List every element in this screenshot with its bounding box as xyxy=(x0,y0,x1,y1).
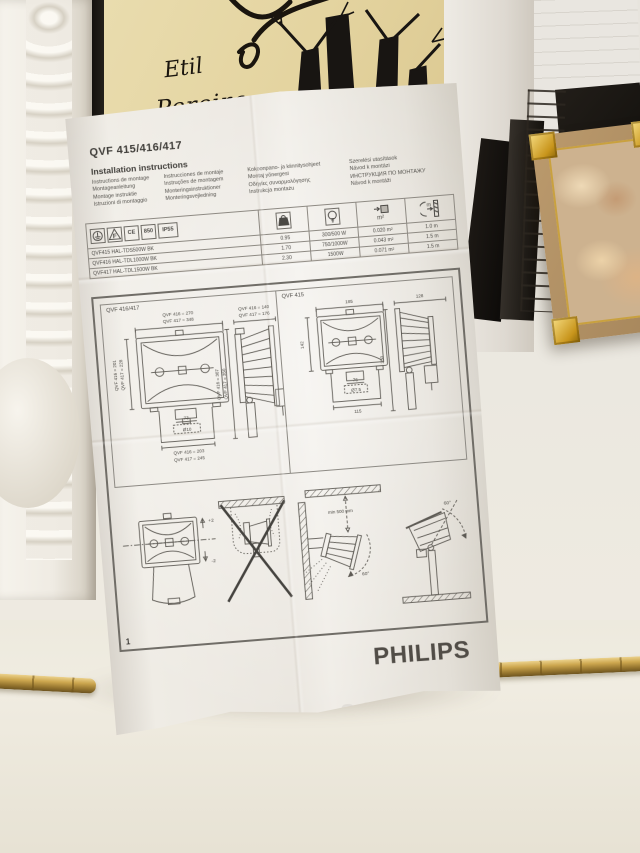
pole-angle-label: 60° xyxy=(444,500,452,507)
dim-label: 250 xyxy=(379,355,385,363)
aim-down-label: -2 xyxy=(211,558,216,564)
m-label: m xyxy=(426,202,431,208)
bulb-icon xyxy=(311,206,354,227)
ce-mark: CE xyxy=(123,225,139,241)
aiming-diagram xyxy=(121,510,221,608)
qvf415-drawing: 185 142 76 Ø7.5 115 128 250 xyxy=(276,277,466,473)
f-triangle-icon: F xyxy=(107,226,123,242)
dim-label: QVF 417 = 176 xyxy=(239,310,271,318)
wall-mount-diagram xyxy=(297,485,389,600)
technical-drawings-box: QVF 416/417 xyxy=(91,268,488,653)
min-distance-icon: m xyxy=(409,198,452,219)
spec-table: F CE 850 IP55 kg xyxy=(85,194,458,279)
f-symbol-label: F xyxy=(113,233,118,240)
translation-col-2: Instrucciones de montaje Instruções de m… xyxy=(163,167,249,203)
dim-label: 185 xyxy=(345,299,353,305)
model-number: QVF 415/416/417 xyxy=(89,139,183,158)
dim-label: 115 xyxy=(354,408,362,414)
translation-col-1: Instructions de montage Montageanleitung… xyxy=(92,174,166,209)
panel-qvf416-417: QVF 416/417 xyxy=(101,291,291,487)
kg-label: kg xyxy=(281,220,287,225)
gold-corner-ornament xyxy=(529,131,558,160)
page-number: 1 xyxy=(125,637,130,646)
dim-label: 142 xyxy=(299,341,305,349)
forbidden-recess-diagram xyxy=(218,496,288,559)
pole-mount-diagram xyxy=(395,499,471,603)
min-distance-label: min 500 mm xyxy=(328,508,353,515)
photo-scene: Etil Pereira QVF 415/416/417 Installatio… xyxy=(0,0,640,853)
dim-label: QVF 417 = 245 xyxy=(174,455,206,463)
weight-kg-icon: kg xyxy=(262,210,305,231)
gold-corner-ornament xyxy=(551,316,580,345)
dim-label: Ø10 xyxy=(183,427,192,433)
qvf416-417-drawing: QVF 416 = 270 QVF 417 = 348 QVF 416 = 20… xyxy=(101,291,290,486)
cherub-painting xyxy=(548,138,640,326)
poster-signature-line1: Etil xyxy=(163,54,205,84)
dim-label: QVF 417 = 348 xyxy=(163,317,195,325)
temp-850-mark: 850 xyxy=(140,223,156,239)
ip55-mark: IP55 xyxy=(157,222,178,239)
panel-qvf415: QVF 415 xyxy=(276,277,466,473)
dim-label: Ø7.5 xyxy=(351,387,362,393)
dim-label: 128 xyxy=(416,293,424,299)
dim-label: QVF 417 = 228 xyxy=(118,359,126,391)
dimension-panels: QVF 416/417 xyxy=(100,276,468,488)
wall-angle-label: 60° xyxy=(362,571,370,578)
philips-wordmark: PHILIPS xyxy=(350,635,494,674)
m2-label: m² xyxy=(377,215,384,222)
earth-ground-icon xyxy=(90,227,106,243)
translation-col-4: Szerelési utasítások Návod k montázi ИНС… xyxy=(349,151,451,189)
dim-label: 76 xyxy=(353,377,359,382)
instruction-sheet: QVF 415/416/417 Installation instruction… xyxy=(63,77,509,749)
wind-area-m2-icon: m² xyxy=(360,202,403,223)
mounting-diagrams: +2 -2 xyxy=(115,463,482,641)
translation-col-3: Kokoonpano- ja kiinnitysohjeet Montaj yö… xyxy=(247,159,351,197)
dim-label: 73 xyxy=(183,415,189,420)
aim-up-label: +2 xyxy=(208,517,214,523)
